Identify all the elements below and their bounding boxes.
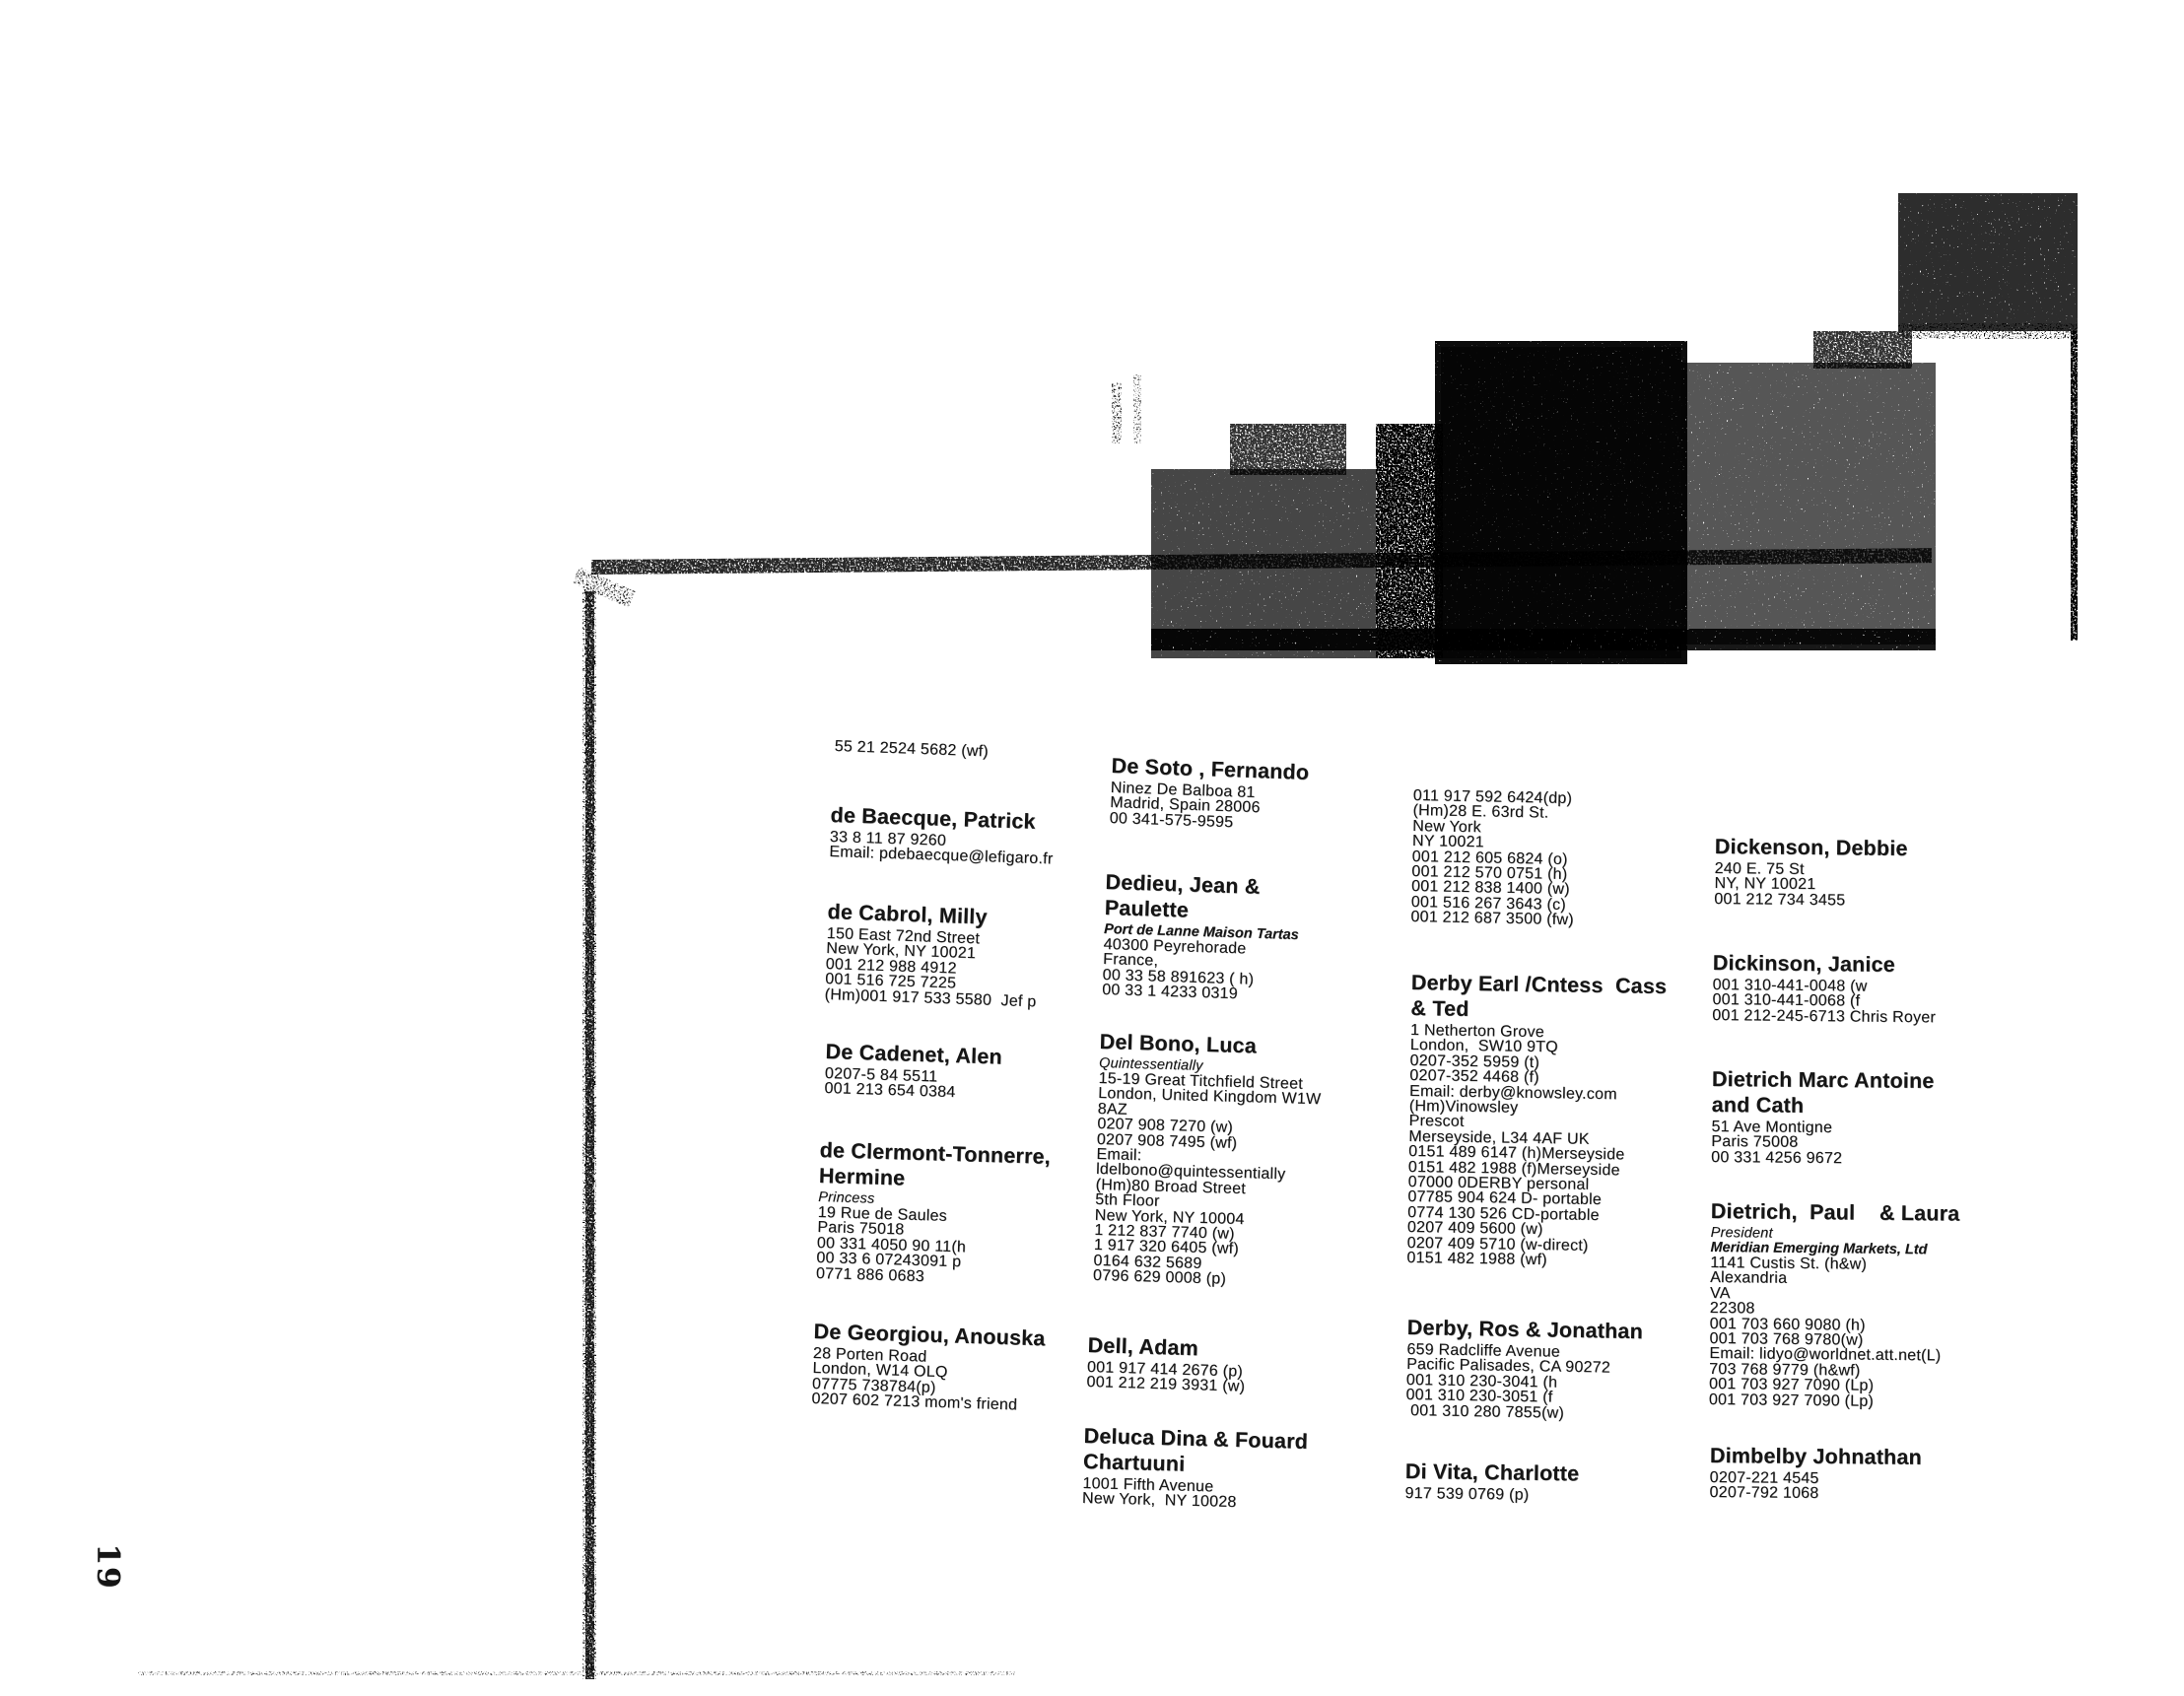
contact-entry: Di Vita, Charlotte917 539 0769 (p) <box>1404 1460 1579 1504</box>
contact-detail-line: 001 310 280 7855(w) <box>1405 1403 1641 1423</box>
contact-detail-line: 00 331 4256 9672 <box>1711 1150 1934 1167</box>
contact-name: Chartuuni <box>1083 1451 1308 1479</box>
contact-entry: Dimbelby Johnathan0207-221 45450207-792 … <box>1710 1445 1923 1503</box>
contact-entry: Dickinson, Janice001 310-441-0048 (w001 … <box>1712 952 1936 1026</box>
contact-entry: De Georgiou, Anouska28 Porten RoadLondon… <box>811 1321 1046 1414</box>
contact-entry: Derby Earl /Cntess Cass& Ted1 Netherton … <box>1406 972 1667 1270</box>
contact-entry: Dell, Adam001 917 414 2676 (p)001 212 21… <box>1086 1334 1246 1395</box>
contact-entry: 55 21 2524 5682 (wf) <box>834 739 989 760</box>
contact-entry: Del Bono, LucaQuintessentially15-19 Grea… <box>1093 1031 1323 1290</box>
contact-name: Paulette <box>1104 897 1299 925</box>
contact-name: Deluca Dina & Fouard <box>1083 1425 1308 1454</box>
contact-detail-line: 0207-792 1068 <box>1710 1485 1922 1502</box>
contact-entry: Dietrich, Paul & LauraPresidentMeridian … <box>1709 1200 1960 1410</box>
contact-name: and Cath <box>1712 1094 1935 1119</box>
contact-name: Dimbelby Johnathan <box>1710 1445 1922 1469</box>
contact-detail-line: 001 212 734 3455 <box>1714 892 1907 909</box>
contact-entry: Dedieu, Jean &PaulettePort de Lanne Mais… <box>1102 871 1301 1004</box>
contact-entry: Dietrich Marc Antoineand Cath51 Ave Mont… <box>1711 1068 1934 1167</box>
contact-entry: 011 917 592 6424(dp)(Hm)28 E. 63rd St.Ne… <box>1410 788 1576 928</box>
contact-detail-line: 001 212-245-6713 Chris Royer <box>1712 1008 1936 1026</box>
contact-name: Dickenson, Debbie <box>1715 836 1908 860</box>
contact-detail-line: Alexandria <box>1710 1270 1959 1288</box>
contact-detail-line: 001 703 927 7090 (Lp) <box>1709 1392 1958 1410</box>
contact-entries: 55 21 2524 5682 (wf)de Baecque, Patrick3… <box>0 0 2184 1696</box>
contact-name: Di Vita, Charlotte <box>1405 1460 1580 1485</box>
contact-detail-line: 917 539 0769 (p) <box>1404 1486 1579 1504</box>
contact-entry: Dickenson, Debbie240 E. 75 StNY, NY 1002… <box>1714 836 1908 909</box>
contact-name: & Ted <box>1410 997 1667 1024</box>
contact-entry: De Soto , FernandoNinez De Balboa 81Madr… <box>1109 755 1309 833</box>
contact-entry: de Baecque, Patrick33 8 11 87 9260Email:… <box>829 804 1055 867</box>
contact-detail-line: 0151 482 1988 (wf) <box>1406 1251 1663 1269</box>
contact-entry: Derby, Ros & Jonathan659 Radcliffe Avenu… <box>1405 1317 1643 1422</box>
contact-entry: de Cabrol, Milly150 East 72nd StreetNew … <box>824 901 1039 1009</box>
contact-entry: Deluca Dina & FouardChartuuni1001 Fifth … <box>1082 1425 1308 1513</box>
contact-name: Dell, Adam <box>1087 1334 1246 1362</box>
contact-detail-line: 001 212 219 3931 (w) <box>1086 1375 1245 1394</box>
contact-name: Dietrich Marc Antoine <box>1712 1068 1935 1093</box>
contact-name: Del Bono, Luca <box>1099 1031 1323 1059</box>
contact-name: Dedieu, Jean & <box>1105 871 1300 900</box>
scanned-address-book-page: 19 55 21 2524 5682 (wf)de Baecque, Patri… <box>0 0 2184 1696</box>
contact-detail-line: 001 212 687 3500 (fw) <box>1410 910 1574 928</box>
contact-entry: de Clermont-Tonnerre,HerminePrincess19 R… <box>816 1139 1052 1288</box>
contact-detail-line: 55 21 2524 5682 (wf) <box>834 739 989 760</box>
contact-entry: De Cadenet, Alen0207-5 84 5511001 213 65… <box>824 1041 1002 1102</box>
contact-name: De Cadenet, Alen <box>825 1041 1002 1069</box>
contact-name: Derby Earl /Cntess Cass <box>1411 972 1668 998</box>
contact-name: Dietrich, Paul & Laura <box>1711 1200 1960 1226</box>
contact-name: Derby, Ros & Jonathan <box>1407 1317 1644 1343</box>
contact-name: Dickinson, Janice <box>1713 952 1937 977</box>
